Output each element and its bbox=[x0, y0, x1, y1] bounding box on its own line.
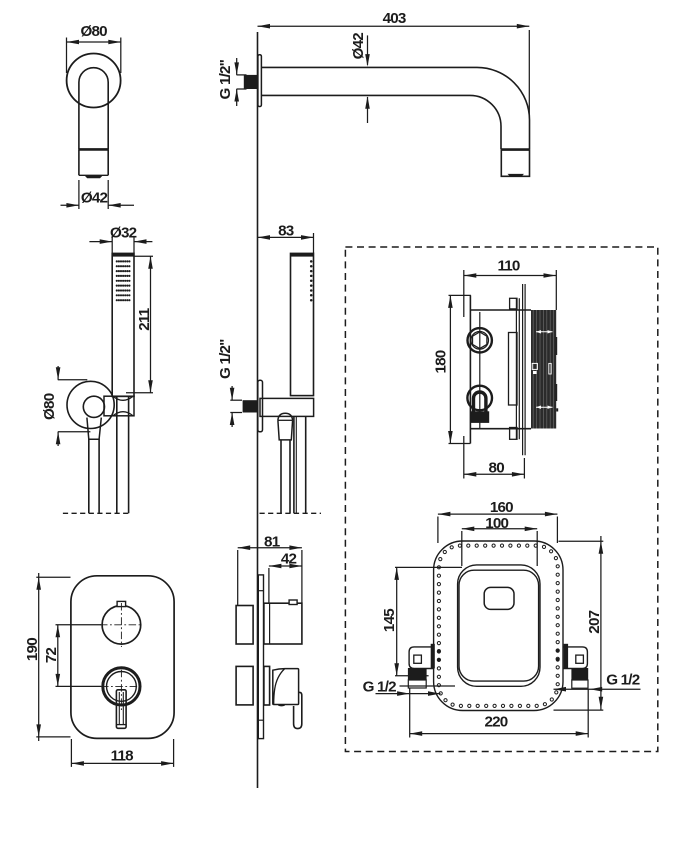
svg-text:110: 110 bbox=[497, 257, 519, 274]
svg-text:Ø32: Ø32 bbox=[110, 224, 137, 241]
svg-text:Ø42: Ø42 bbox=[350, 33, 367, 60]
svg-text:72: 72 bbox=[43, 648, 60, 664]
svg-text:Ø42: Ø42 bbox=[81, 189, 108, 206]
svg-text:118: 118 bbox=[111, 748, 133, 765]
svg-text:207: 207 bbox=[586, 610, 603, 633]
svg-text:Ø80: Ø80 bbox=[80, 23, 107, 40]
svg-text:Ø80: Ø80 bbox=[41, 393, 58, 420]
svg-text:G 1/2": G 1/2" bbox=[217, 59, 234, 99]
svg-text:220: 220 bbox=[485, 714, 508, 731]
svg-text:G 1/2": G 1/2" bbox=[217, 339, 234, 379]
svg-text:G 1/2: G 1/2 bbox=[363, 678, 396, 695]
svg-text:83: 83 bbox=[278, 222, 294, 239]
svg-text:180: 180 bbox=[432, 350, 449, 373]
svg-text:190: 190 bbox=[24, 638, 41, 661]
svg-text:145: 145 bbox=[381, 608, 398, 632]
svg-text:403: 403 bbox=[383, 10, 406, 27]
svg-text:G 1/2: G 1/2 bbox=[606, 671, 639, 688]
svg-text:211: 211 bbox=[136, 307, 153, 330]
